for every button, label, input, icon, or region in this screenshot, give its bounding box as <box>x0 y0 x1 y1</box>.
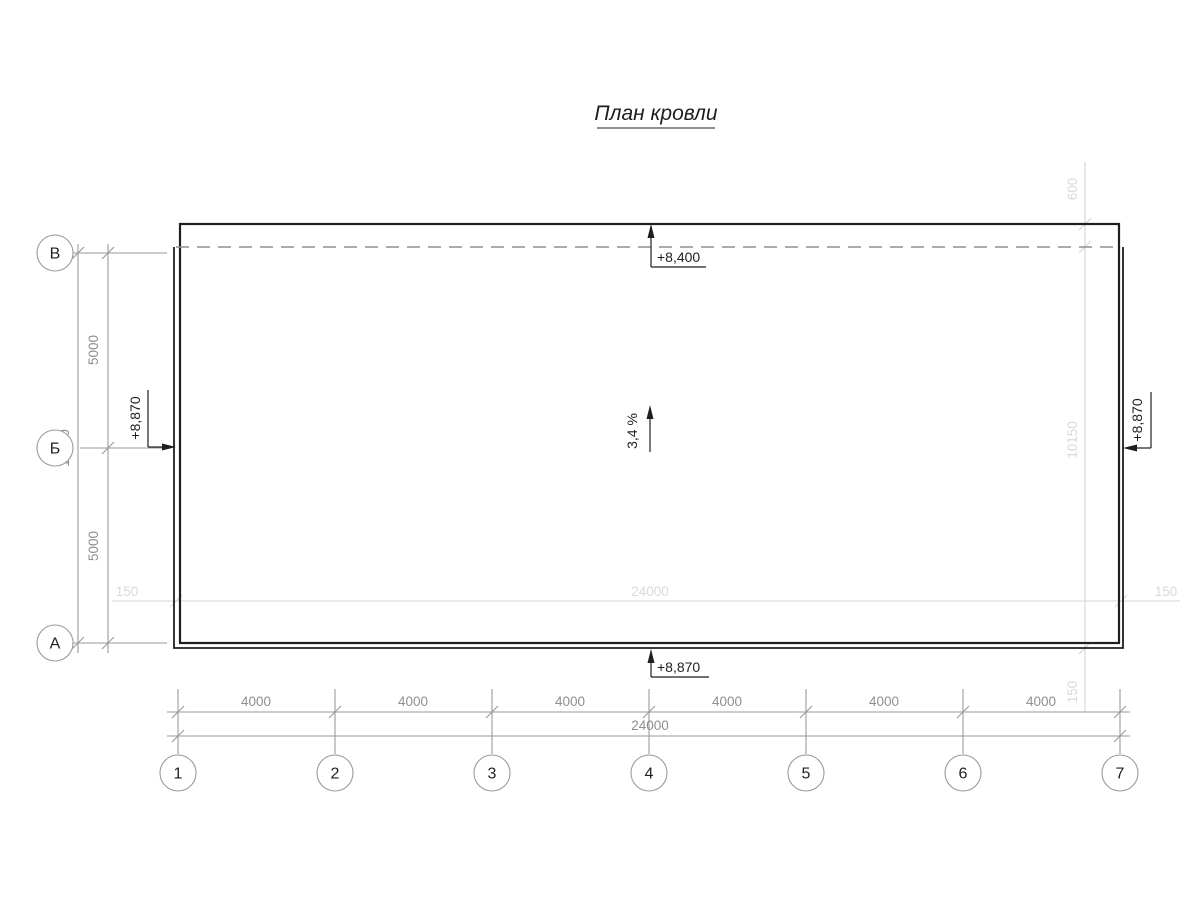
axis-label-v: В <box>50 246 61 263</box>
elevation-label-left: +8,870 <box>127 396 143 439</box>
axis-label-5: 5 <box>802 766 811 783</box>
elevation-arrow-icon <box>648 224 655 238</box>
elevation-mark-left: +8,870 <box>127 390 176 451</box>
axis-label-3: 3 <box>488 766 497 783</box>
axis-label-6: 6 <box>959 766 968 783</box>
dim-label-parapet-right: 150 <box>1155 584 1178 599</box>
elevation-arrow-icon <box>648 649 655 663</box>
axis-label-7: 7 <box>1116 766 1125 783</box>
elevation-mark-right: +8,870 <box>1123 392 1151 452</box>
bottom-dimension-layer: 4000 4000 4000 4000 4000 4000 24000 1 2 … <box>160 689 1138 791</box>
dim-label-left-upper: 5000 <box>86 335 101 365</box>
dim-label-bay-5: 4000 <box>869 694 899 709</box>
axis-label-2: 2 <box>331 766 340 783</box>
elevation-label-top: +8,400 <box>657 249 700 265</box>
dim-label-bay-6: 4000 <box>1026 694 1056 709</box>
elevation-label-right: +8,870 <box>1129 398 1145 441</box>
roof-plan-drawing: 600 10150 150 150 24000 150 10000 5000 5… <box>0 0 1200 900</box>
elevation-label-bottom: +8,870 <box>657 659 700 675</box>
dim-label-left-lower: 5000 <box>86 531 101 561</box>
left-dimension-layer: 10000 5000 5000 В Б А <box>37 235 167 661</box>
elevation-mark-bottom: +8,870 <box>648 649 710 677</box>
slope-label: 3,4 % <box>624 413 640 449</box>
axis-label-a: А <box>50 636 61 653</box>
axis-label-1: 1 <box>174 766 183 783</box>
elevation-mark-top: +8,400 <box>648 224 707 267</box>
dim-label-parapet-left: 150 <box>116 584 139 599</box>
dim-label-roof-span: 24000 <box>631 584 669 599</box>
faint-dimension-layer: 600 10150 150 150 24000 150 <box>112 162 1180 712</box>
dim-label-bay-4: 4000 <box>712 694 742 709</box>
axis-label-4: 4 <box>645 766 654 783</box>
dim-label-parapet-bottom: 150 <box>1065 681 1080 704</box>
title-block: План кровли <box>594 102 718 128</box>
dim-label-bottom-total: 24000 <box>631 718 669 733</box>
dim-label-bay-3: 4000 <box>555 694 585 709</box>
dim-label-parapet-top: 600 <box>1065 178 1080 201</box>
axis-label-b: Б <box>50 441 61 458</box>
page-title: План кровли <box>594 102 718 125</box>
roof-plan-canvas: 600 10150 150 150 24000 150 10000 5000 5… <box>0 0 1200 900</box>
dim-label-bay-2: 4000 <box>398 694 428 709</box>
dim-label-bay-1: 4000 <box>241 694 271 709</box>
elevation-arrow-icon <box>1123 445 1137 452</box>
slope-mark: 3,4 % <box>624 405 654 452</box>
dim-label-right-span: 10150 <box>1065 421 1080 459</box>
slope-arrow-icon <box>647 405 654 419</box>
